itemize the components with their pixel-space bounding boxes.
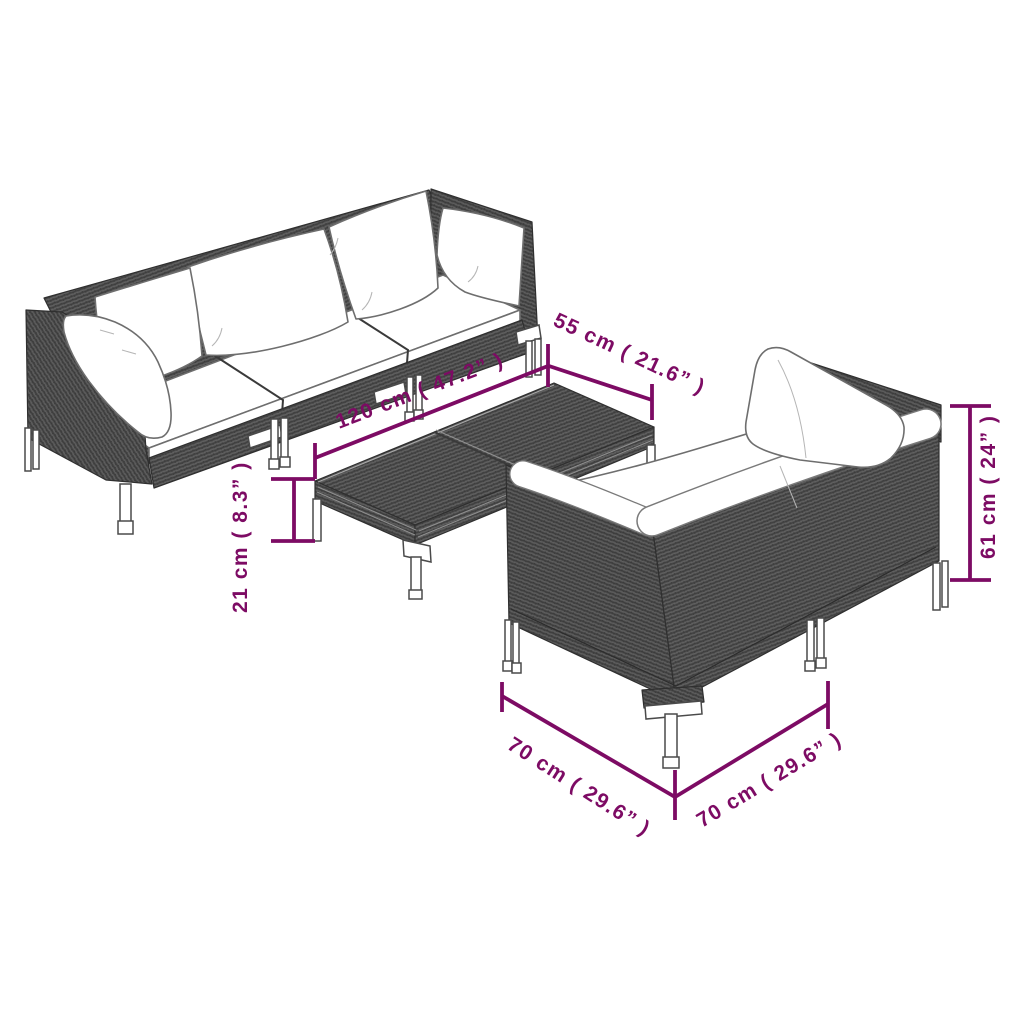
svg-text:55 cm ( 21.6” ): 55 cm ( 21.6” ) bbox=[550, 309, 709, 400]
svg-text:70 cm ( 29.6” ): 70 cm ( 29.6” ) bbox=[693, 728, 846, 833]
svg-text:21 cm ( 8.3” ): 21 cm ( 8.3” ) bbox=[229, 461, 252, 613]
svg-text:61 cm ( 24” ): 61 cm ( 24” ) bbox=[977, 415, 1000, 559]
svg-text:70 cm ( 29.6” ): 70 cm ( 29.6” ) bbox=[503, 733, 654, 841]
